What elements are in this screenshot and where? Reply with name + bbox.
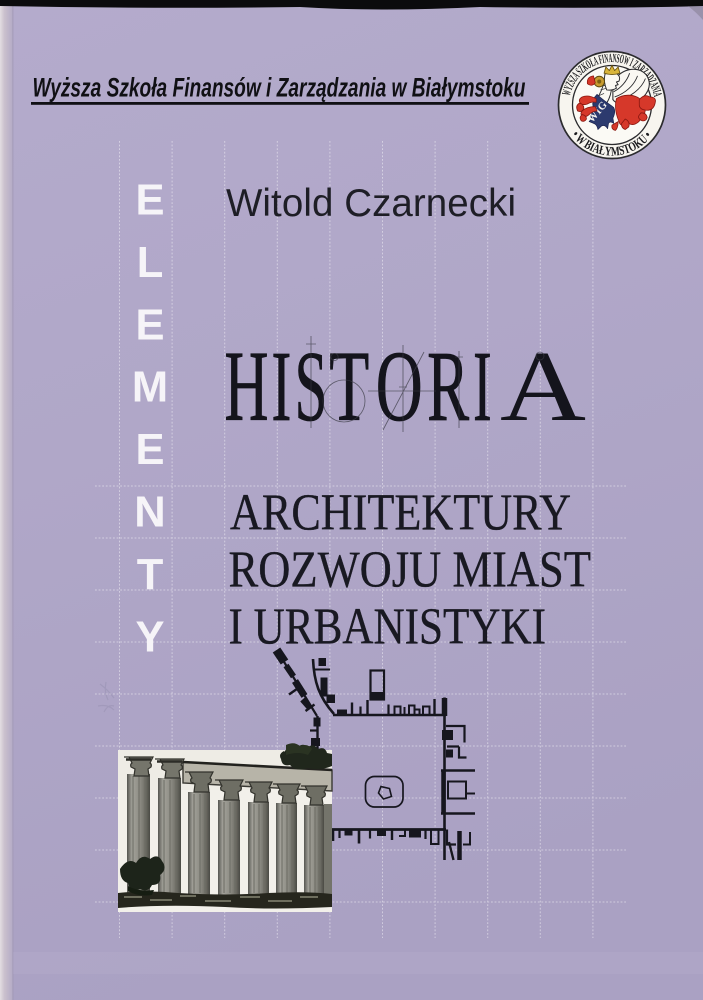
svg-text:T: T bbox=[137, 551, 164, 599]
svg-text:I: I bbox=[473, 330, 492, 442]
svg-text:I URBANISTYKI: I URBANISTYKI bbox=[229, 599, 547, 656]
svg-text:E: E bbox=[135, 426, 164, 474]
svg-text:O: O bbox=[376, 330, 423, 442]
svg-text:I: I bbox=[271, 330, 291, 442]
svg-text:L: L bbox=[137, 239, 164, 287]
svg-text:N: N bbox=[134, 489, 165, 537]
svg-text:ARCHITEKTURY: ARCHITEKTURY bbox=[230, 485, 571, 542]
svg-text:E: E bbox=[135, 177, 164, 225]
svg-text:Wyższa Szkoła Finansów i Zarzą: Wyższa Szkoła Finansów i Zarządzania w B… bbox=[33, 73, 526, 103]
svg-text:M: M bbox=[132, 364, 168, 412]
svg-text:T: T bbox=[329, 330, 369, 442]
svg-text:H: H bbox=[225, 330, 269, 442]
svg-text:A: A bbox=[500, 330, 586, 442]
svg-text:E: E bbox=[135, 301, 164, 349]
svg-text:R: R bbox=[427, 330, 469, 442]
svg-text:Y: Y bbox=[135, 613, 164, 661]
svg-text:Witold Czarnecki: Witold Czarnecki bbox=[226, 182, 516, 225]
svg-text:ROZWOJU MIAST: ROZWOJU MIAST bbox=[229, 542, 592, 599]
